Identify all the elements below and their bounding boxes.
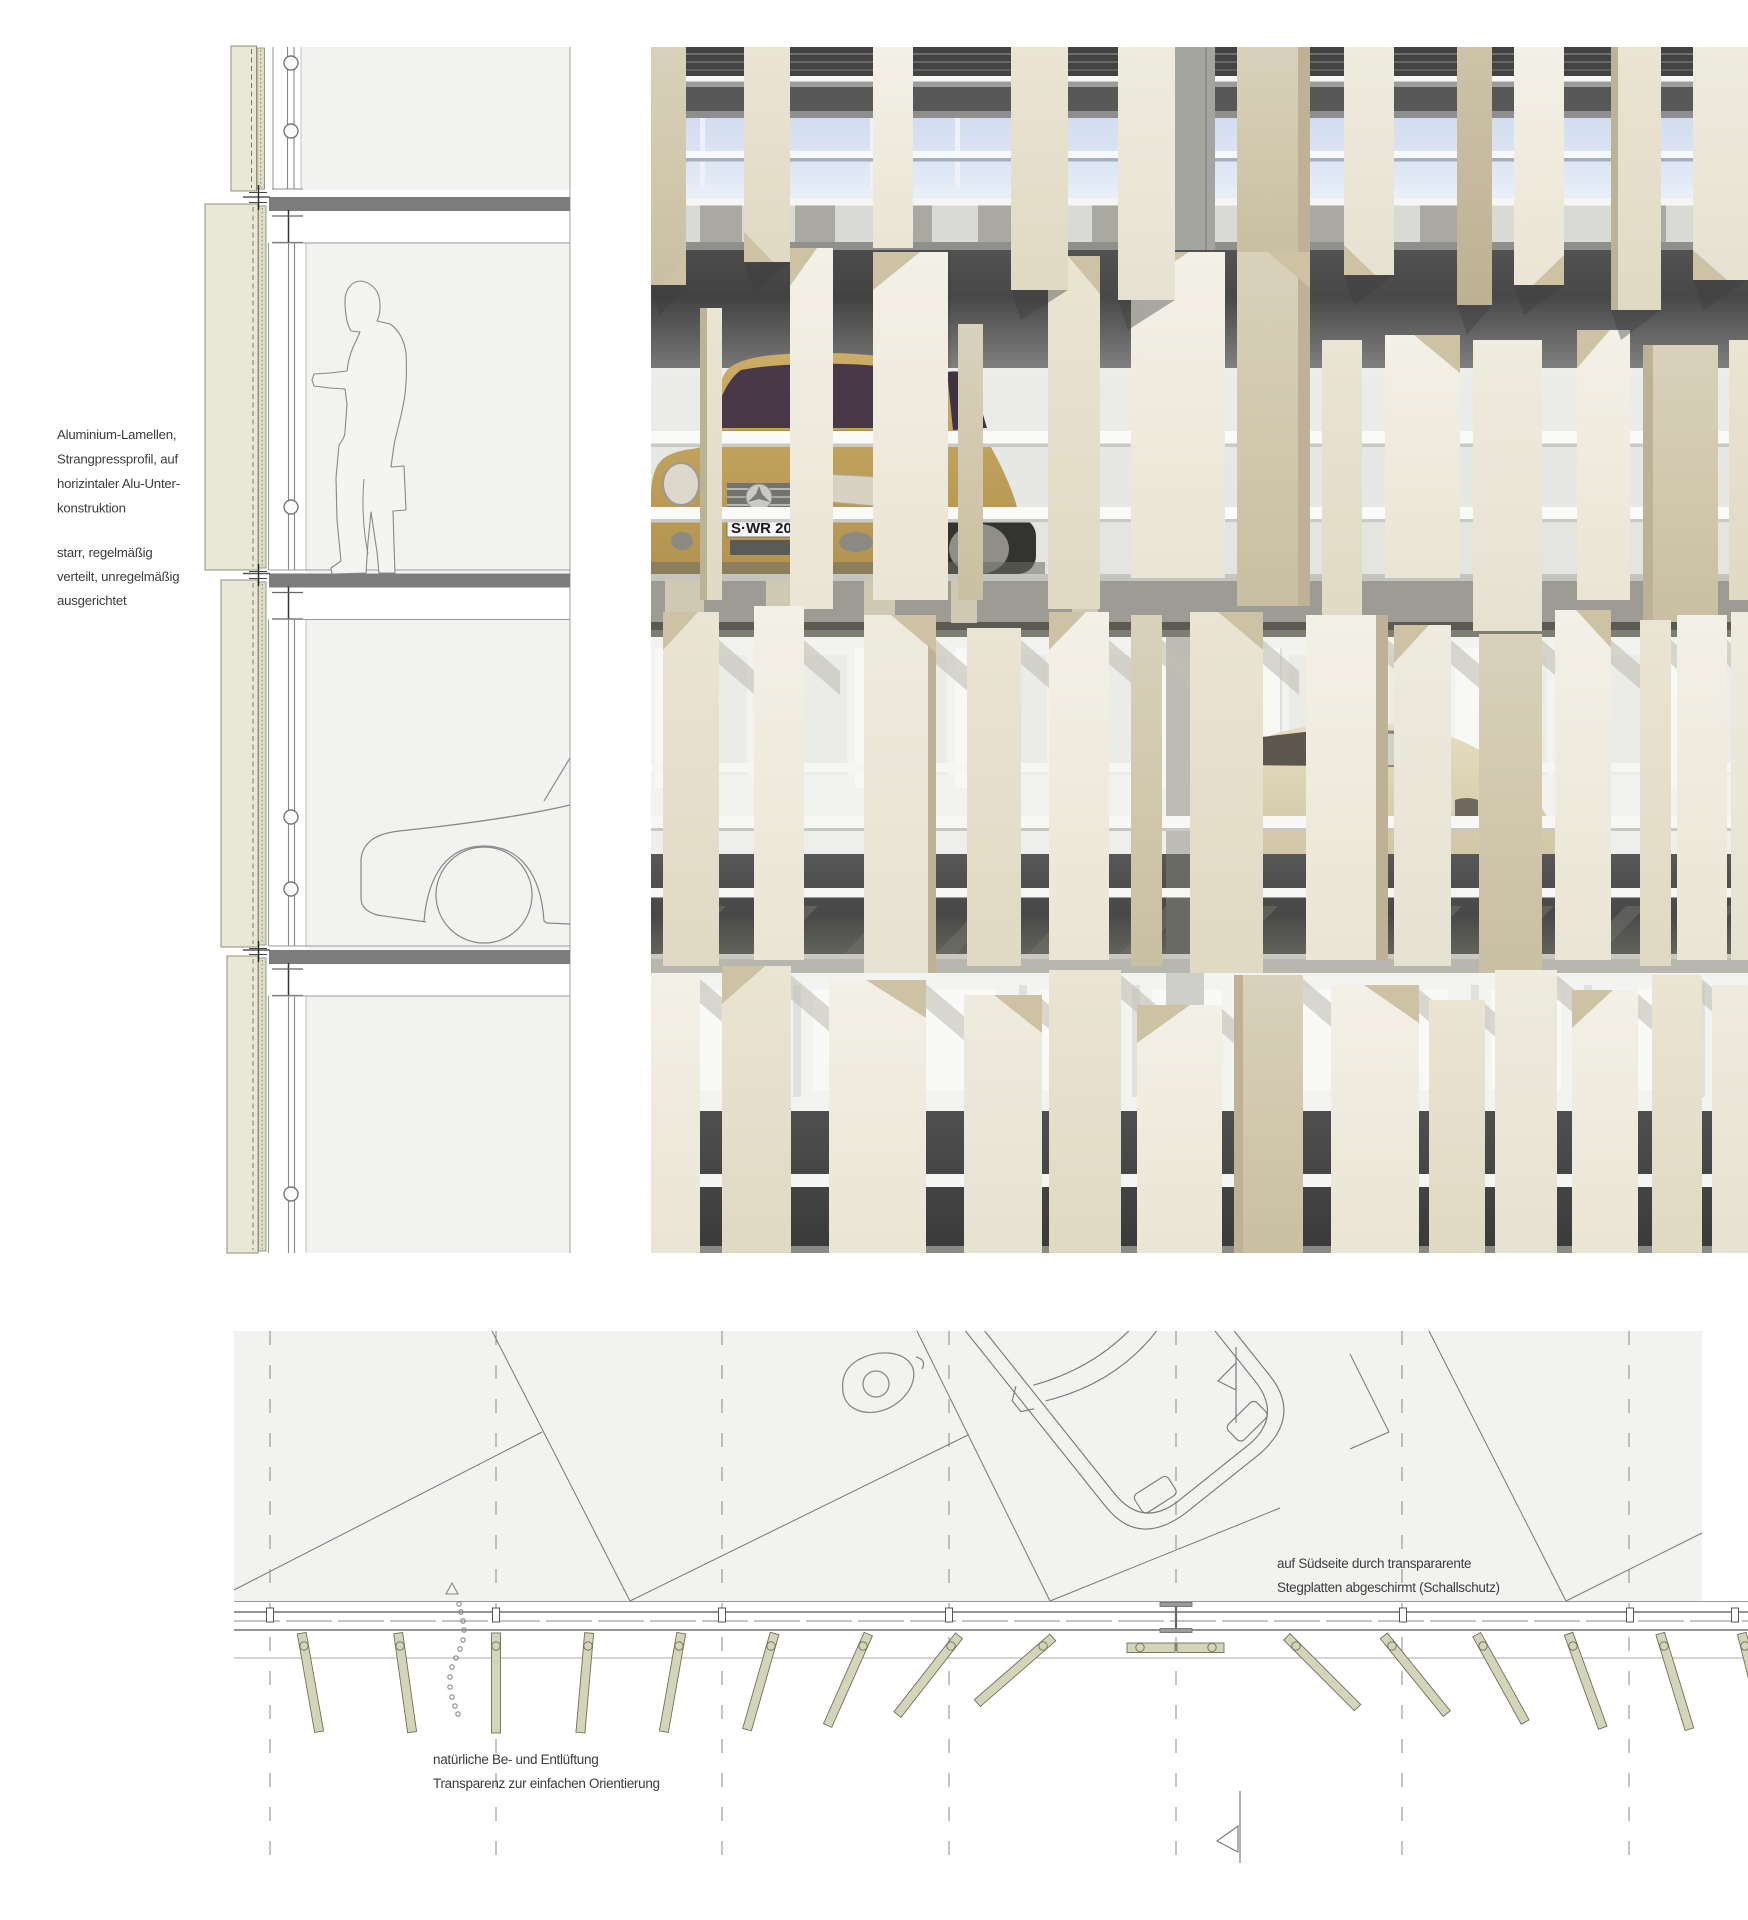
svg-text:Aluminium-Lamellen,: Aluminium-Lamellen, xyxy=(57,427,176,442)
svg-text:natürliche Be- und Entlüftung: natürliche Be- und Entlüftung xyxy=(433,1752,598,1767)
svg-text:ausgerichtet: ausgerichtet xyxy=(57,593,127,608)
svg-text:Strangpressprofil, auf: Strangpressprofil, auf xyxy=(57,452,178,467)
svg-text:starr, regelmäßig: starr, regelmäßig xyxy=(57,545,153,560)
svg-text:konstruktion: konstruktion xyxy=(57,501,126,516)
svg-text:S·WR 201: S·WR 201 xyxy=(731,520,800,537)
svg-text:horizintaler Alu-Unter-: horizintaler Alu-Unter- xyxy=(57,476,180,491)
svg-text:verteilt, unregelmäßig: verteilt, unregelmäßig xyxy=(57,569,179,584)
svg-text:Transparenz zur einfachen Orie: Transparenz zur einfachen Orientierung xyxy=(433,1776,660,1791)
svg-text:Stegplatten abgeschirmt (Schal: Stegplatten abgeschirmt (Schallschutz) xyxy=(1277,1580,1500,1595)
svg-text:auf Südseite durch transparare: auf Südseite durch transpararente xyxy=(1277,1556,1471,1571)
